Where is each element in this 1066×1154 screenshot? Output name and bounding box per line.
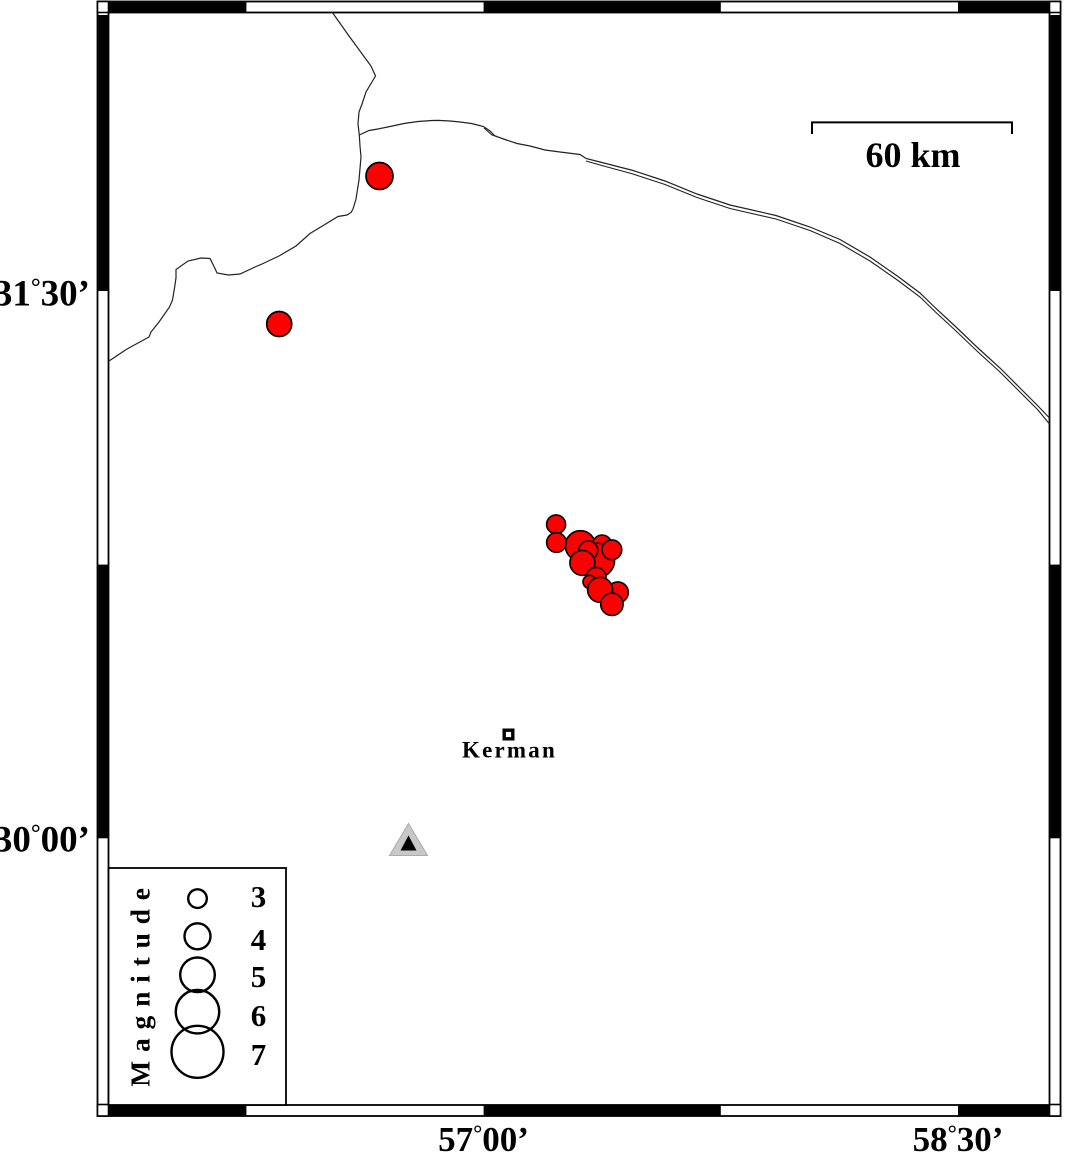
svg-text:4: 4: [251, 922, 267, 957]
svg-text:Kerman: Kerman: [462, 738, 557, 763]
svg-text:60 km: 60 km: [865, 135, 960, 175]
svg-text:6: 6: [251, 998, 267, 1033]
svg-text:31°30’: 31°30’: [0, 274, 90, 315]
svg-text:5: 5: [251, 959, 267, 994]
svg-text:58°30’: 58°30’: [913, 1120, 1004, 1154]
svg-text:30°00’: 30°00’: [0, 820, 90, 861]
svg-text:7: 7: [251, 1037, 267, 1072]
svg-text:3: 3: [251, 879, 267, 914]
svg-text:57°00’: 57°00’: [438, 1120, 529, 1154]
svg-text:Magnitude: Magnitude: [125, 879, 156, 1087]
